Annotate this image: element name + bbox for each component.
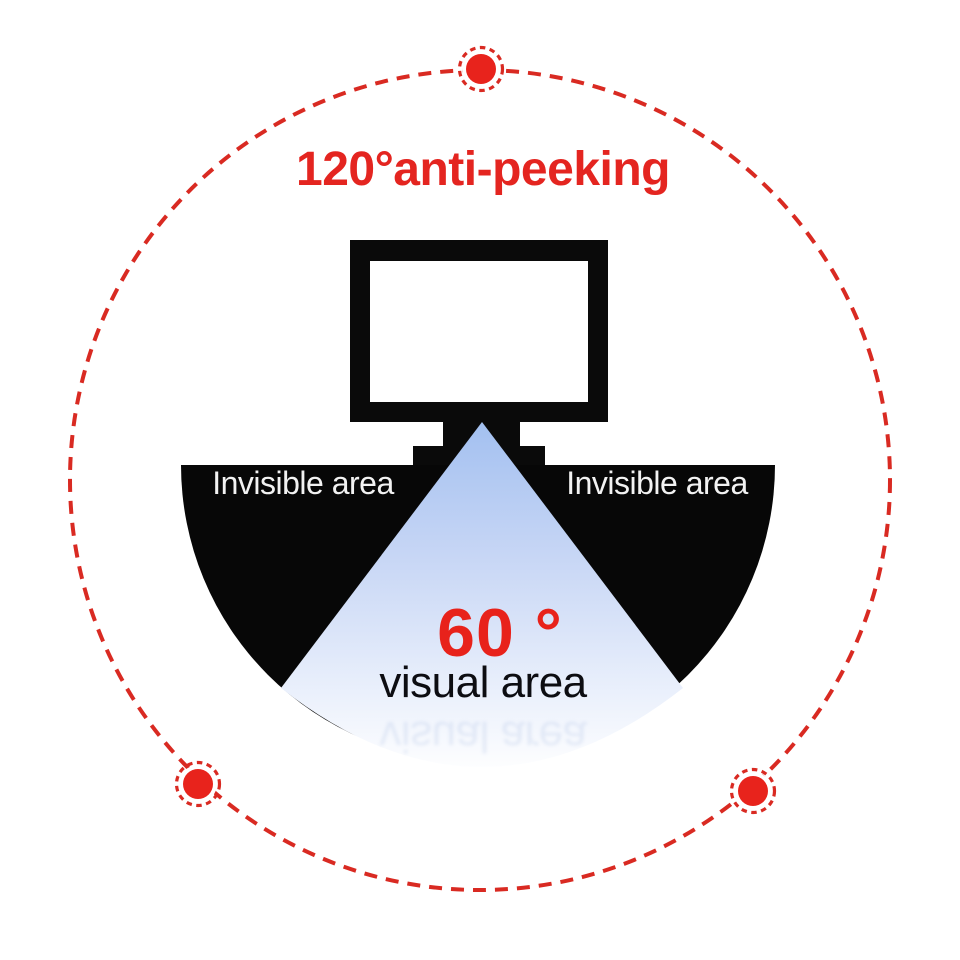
anti-peeking-infographic: 120°anti-peeking Invisible area Invisibl…	[0, 0, 960, 960]
visual-angle-label: 60 °	[437, 599, 563, 667]
visual-area-label: visual area	[379, 661, 586, 705]
viewer-dot-icon	[183, 769, 213, 799]
viewer-dot-icon	[466, 54, 496, 84]
invisible-area-label-left: Invisible area	[212, 467, 394, 499]
monitor-screen	[370, 261, 588, 402]
invisible-area-label-right: Invisible area	[566, 467, 748, 499]
anti-peeking-title: 120°anti-peeking	[296, 146, 670, 194]
viewer-dot-top	[460, 48, 503, 91]
visual-area-reflection: visual area	[379, 714, 586, 758]
viewer-dot-icon	[738, 776, 768, 806]
viewer-dot-right	[732, 770, 775, 813]
viewer-dot-left	[177, 763, 220, 806]
